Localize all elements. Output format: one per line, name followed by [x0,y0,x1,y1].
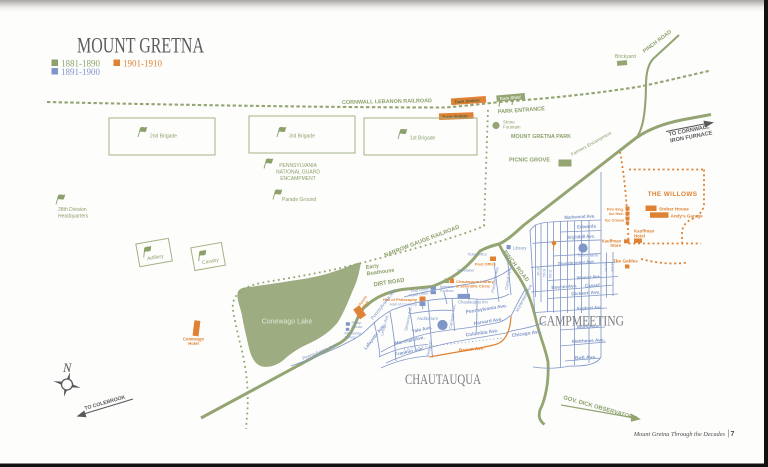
svg-text:7: 7 [731,431,735,438]
svg-text:Ice Hse.: Ice Hse. [609,211,624,216]
svg-text:Parade Ground: Parade Ground [282,197,316,203]
svg-text:Cassel: Cassel [585,282,600,288]
svg-text:Mount Gretna Through the Decad: Mount Gretna Through the Decades [633,431,726,438]
svg-text:Pavilions: Pavilions [440,289,454,293]
svg-text:Store: Store [610,243,621,248]
svg-text:1st St: 1st St [604,263,608,272]
svg-text:NATIONAL GUARD: NATIONAL GUARD [276,170,320,176]
svg-text:28th Division: 28th Division [58,207,87,213]
svg-text:Ice Cream: Ice Cream [605,218,625,223]
svg-text:The Gables: The Gables [613,259,638,264]
svg-text:Edwards: Edwards [577,223,597,229]
svg-text:ENCAMPMENT: ENCAMPMENT [280,176,316,182]
svg-text:6th St: 6th St [549,270,553,278]
svg-text:2nd St: 2nd St [611,262,615,272]
svg-text:Conewago Lake: Conewago Lake [262,319,313,326]
svg-text:Andy's Garage: Andy's Garage [671,214,704,219]
svg-text:House: House [352,325,363,329]
svg-text:Caretaker: Caretaker [457,268,475,273]
svg-text:Train Station: Train Station [442,113,468,119]
svg-text:Tabernacle: Tabernacle [577,253,599,258]
svg-text:MOUNT GRETNA: MOUNT GRETNA [77,33,205,58]
svg-text:Post Office: Post Office [475,262,497,267]
svg-text:Library: Library [513,246,527,251]
svg-text:THE WILLOWS: THE WILLOWS [648,191,698,198]
svg-text:N: N [62,361,72,375]
svg-text:3rd Brigade: 3rd Brigade [289,134,315,140]
svg-text:Headquarters: Headquarters [58,214,89,220]
svg-text:Fountain: Fountain [503,125,521,130]
svg-text:5th St: 5th St [543,269,547,277]
svg-text:Stober House: Stober House [659,207,689,212]
svg-text:Ticket Office: Ticket Office [467,253,487,257]
svg-text:1901-1910: 1901-1910 [123,59,162,69]
svg-text:& Scientific Circle: & Scientific Circle [456,284,491,289]
svg-text:Hall of Cookery: Hall of Cookery [390,302,417,307]
svg-text:CAMPMEETING: CAMPMEETING [539,314,624,330]
svg-text:1st Brigade: 1st Brigade [410,136,436,142]
svg-text:Hotel: Hotel [634,233,645,238]
svg-text:PICNIC GROVE: PICNIC GROVE [509,158,550,164]
svg-text:Brickyard: Brickyard [615,54,636,60]
svg-text:PENNSYLVANIA: PENNSYLVANIA [279,163,317,169]
svg-text:2nd Brigade: 2nd Brigade [150,134,177,140]
svg-text:Auditorium: Auditorium [417,316,438,321]
svg-text:4th St: 4th St [537,268,541,276]
svg-text:Hotel: Hotel [188,341,198,346]
svg-text:1891-1900: 1891-1900 [61,67,100,77]
svg-text:CHAUTAUQUA: CHAUTAUQUA [405,372,481,388]
svg-text:MOUNT GRETNA PARK: MOUNT GRETNA PARK [511,134,571,140]
svg-text:Chautauqua Inn: Chautauqua Inn [458,300,488,305]
